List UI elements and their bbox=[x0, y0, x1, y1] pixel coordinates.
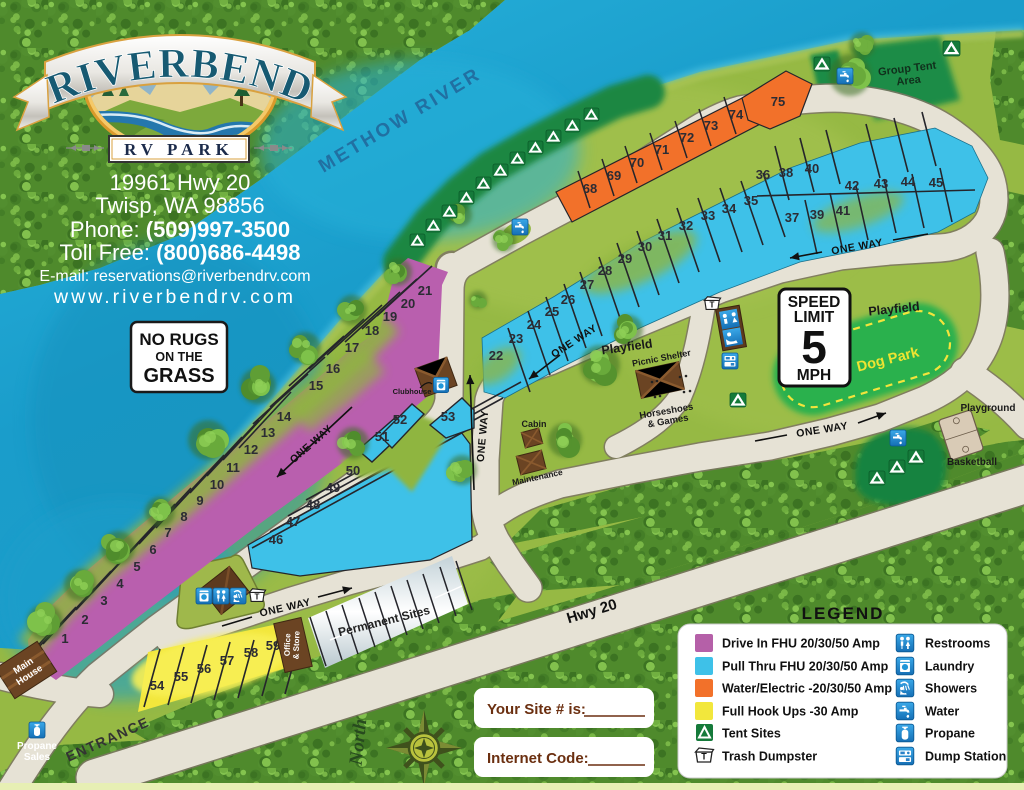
svg-text:23: 23 bbox=[509, 331, 523, 346]
svg-text:58: 58 bbox=[244, 645, 258, 660]
svg-text:72: 72 bbox=[680, 130, 694, 145]
svg-text:ON THE: ON THE bbox=[155, 350, 202, 364]
svg-text:T: T bbox=[710, 300, 715, 309]
svg-text:Water/Electric -20/30/50 Amp: Water/Electric -20/30/50 Amp bbox=[722, 682, 892, 696]
svg-text:29: 29 bbox=[618, 251, 632, 266]
svg-text:17: 17 bbox=[345, 340, 359, 355]
svg-text:57: 57 bbox=[220, 653, 234, 668]
svg-text:38: 38 bbox=[779, 165, 793, 180]
svg-text:26: 26 bbox=[561, 292, 575, 307]
svg-text:4: 4 bbox=[116, 576, 124, 591]
svg-text:47: 47 bbox=[286, 514, 300, 529]
svg-text:Pull Thru FHU 20/30/50 Amp: Pull Thru FHU 20/30/50 Amp bbox=[722, 660, 889, 674]
svg-text:16: 16 bbox=[326, 361, 340, 376]
svg-text:71: 71 bbox=[655, 142, 669, 157]
svg-text:Laundry: Laundry bbox=[925, 660, 974, 674]
svg-text:25: 25 bbox=[545, 304, 559, 319]
svg-text:44: 44 bbox=[901, 174, 916, 189]
svg-text:5: 5 bbox=[801, 321, 827, 373]
svg-text:18: 18 bbox=[365, 323, 379, 338]
svg-text:22: 22 bbox=[489, 348, 503, 363]
svg-text:Internet Code:: Internet Code: bbox=[487, 750, 589, 767]
svg-text:Propane: Propane bbox=[925, 727, 975, 741]
svg-text:2: 2 bbox=[81, 612, 88, 627]
svg-text:Your Site # is:: Your Site # is: bbox=[487, 701, 586, 718]
svg-text:35: 35 bbox=[744, 193, 758, 208]
svg-text:Trash Dumpster: Trash Dumpster bbox=[722, 750, 817, 764]
svg-text:39: 39 bbox=[810, 207, 824, 222]
svg-text:LEGEND: LEGEND bbox=[802, 604, 885, 623]
svg-text:Showers: Showers bbox=[925, 682, 977, 696]
svg-text:24: 24 bbox=[527, 317, 542, 332]
svg-text:53: 53 bbox=[441, 409, 455, 424]
svg-text:48: 48 bbox=[306, 497, 320, 512]
svg-text:11: 11 bbox=[226, 460, 240, 475]
svg-text:52: 52 bbox=[393, 412, 407, 427]
svg-text:21: 21 bbox=[418, 283, 432, 298]
svg-text:45: 45 bbox=[929, 175, 943, 190]
svg-text:55: 55 bbox=[174, 669, 188, 684]
svg-text:50: 50 bbox=[346, 463, 360, 478]
svg-text:7: 7 bbox=[164, 525, 171, 540]
svg-text:NO RUGS: NO RUGS bbox=[139, 330, 218, 349]
svg-text:E-mail: reservations@riverbend: E-mail: reservations@riverbendrv.com bbox=[39, 268, 310, 285]
svg-text:54: 54 bbox=[150, 678, 165, 693]
svg-text:5: 5 bbox=[133, 559, 140, 574]
svg-text:28: 28 bbox=[598, 263, 612, 278]
svg-text:Drive In FHU 20/30/50 Amp: Drive In FHU 20/30/50 Amp bbox=[722, 637, 880, 651]
svg-text:69: 69 bbox=[607, 168, 621, 183]
svg-text:73: 73 bbox=[704, 118, 718, 133]
svg-text:13: 13 bbox=[261, 425, 275, 440]
svg-text:15: 15 bbox=[309, 378, 323, 393]
svg-text:Restrooms: Restrooms bbox=[925, 637, 990, 651]
svg-text:MPH: MPH bbox=[797, 367, 831, 384]
svg-text:Playground: Playground bbox=[960, 403, 1015, 414]
svg-text:Twisp, WA 98856: Twisp, WA 98856 bbox=[95, 193, 264, 218]
svg-text:75: 75 bbox=[771, 94, 785, 109]
svg-text:46: 46 bbox=[269, 532, 283, 547]
svg-text:Water: Water bbox=[925, 705, 959, 719]
svg-text:32: 32 bbox=[679, 218, 693, 233]
svg-text:49: 49 bbox=[326, 480, 340, 495]
svg-text:Dump Station: Dump Station bbox=[925, 750, 1006, 764]
svg-text:34: 34 bbox=[722, 201, 737, 216]
svg-text:6: 6 bbox=[149, 542, 156, 557]
svg-text:10: 10 bbox=[210, 477, 224, 492]
svg-text:68: 68 bbox=[583, 181, 597, 196]
svg-text:36: 36 bbox=[756, 167, 770, 182]
svg-text:19961 Hwy 20: 19961 Hwy 20 bbox=[110, 170, 251, 195]
svg-text:30: 30 bbox=[638, 239, 652, 254]
svg-text:33: 33 bbox=[701, 208, 715, 223]
svg-text:Full Hook Ups -30 Amp: Full Hook Ups -30 Amp bbox=[722, 705, 859, 719]
svg-text:27: 27 bbox=[580, 277, 594, 292]
svg-text:T: T bbox=[255, 592, 260, 601]
svg-text:40: 40 bbox=[805, 161, 819, 176]
svg-text:GRASS: GRASS bbox=[143, 365, 214, 387]
svg-text:42: 42 bbox=[845, 178, 859, 193]
svg-text:www.riverbendrv.com: www.riverbendrv.com bbox=[53, 286, 296, 308]
svg-text:20: 20 bbox=[401, 296, 415, 311]
svg-text:14: 14 bbox=[277, 409, 292, 424]
svg-text:56: 56 bbox=[197, 661, 211, 676]
svg-text:51: 51 bbox=[375, 429, 389, 444]
svg-text:31: 31 bbox=[658, 228, 672, 243]
svg-text:Clubhouse: Clubhouse bbox=[393, 387, 432, 396]
svg-text:1: 1 bbox=[61, 631, 68, 646]
svg-text:Office& Store: Office& Store bbox=[283, 630, 302, 660]
svg-text:RV PARK: RV PARK bbox=[124, 140, 234, 159]
svg-text:12: 12 bbox=[244, 442, 258, 457]
svg-text:9: 9 bbox=[196, 493, 203, 508]
svg-text:3: 3 bbox=[100, 593, 107, 608]
svg-text:Phone: (509)997-3500: Phone: (509)997-3500 bbox=[70, 217, 290, 242]
svg-text:8: 8 bbox=[180, 509, 187, 524]
svg-text:19: 19 bbox=[383, 309, 397, 324]
svg-text:Tent Sites: Tent Sites bbox=[722, 727, 781, 741]
svg-text:37: 37 bbox=[785, 210, 799, 225]
svg-text:Cabin: Cabin bbox=[521, 419, 546, 429]
svg-text:T: T bbox=[701, 752, 707, 762]
svg-text:43: 43 bbox=[874, 176, 888, 191]
svg-text:70: 70 bbox=[630, 155, 644, 170]
svg-text:41: 41 bbox=[836, 203, 850, 218]
svg-text:Basketball: Basketball bbox=[947, 457, 997, 468]
svg-text:Toll Free: (800)686-4498: Toll Free: (800)686-4498 bbox=[60, 240, 301, 265]
svg-text:74: 74 bbox=[729, 107, 744, 122]
